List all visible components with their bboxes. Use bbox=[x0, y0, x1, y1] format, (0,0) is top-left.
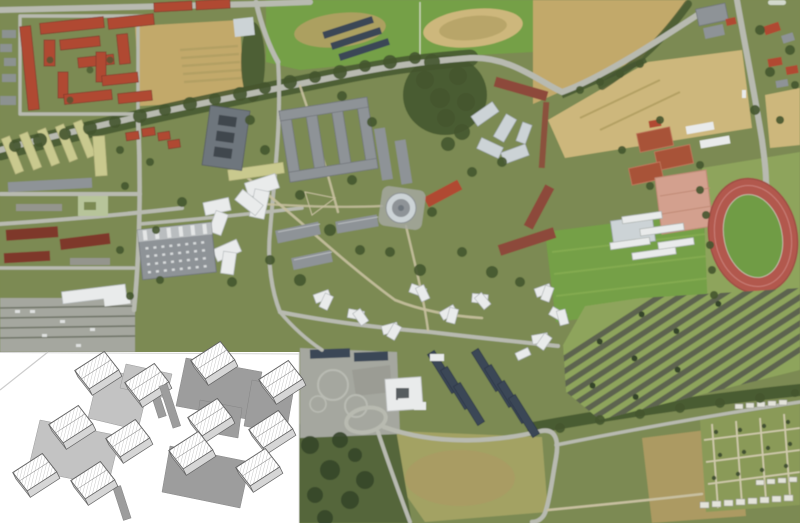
map-artifact bbox=[768, 0, 786, 5]
figure-aerial-campus bbox=[0, 0, 800, 523]
van-on-road bbox=[742, 90, 746, 98]
h-shaped-building bbox=[233, 17, 255, 37]
circular-pavilion bbox=[377, 185, 426, 231]
aerial-photo-canvas bbox=[0, 0, 800, 523]
slab-building-courtyards bbox=[202, 106, 250, 171]
clay-sports-ground bbox=[655, 170, 713, 234]
axonometric-inset bbox=[0, 339, 309, 523]
industrial-hall-skylights bbox=[137, 222, 216, 279]
west-parking-lot bbox=[0, 298, 135, 352]
